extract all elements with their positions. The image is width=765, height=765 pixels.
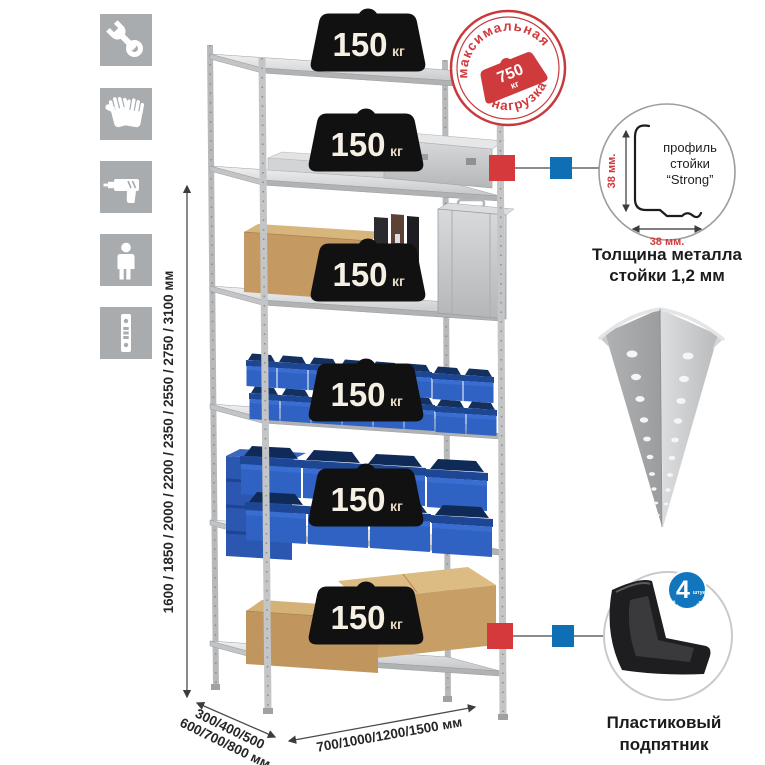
shelf-load-badge: 150 кг: [309, 112, 423, 172]
load-value: 150: [330, 376, 385, 413]
shelf-load-badge: 150 кг: [309, 467, 423, 527]
load-unit: кг: [390, 498, 403, 514]
wrench-icon: [100, 14, 152, 66]
shelving-infographic: 1600 / 1850 / 2000 / 2200 / 2350 / 2550 …: [0, 0, 765, 765]
height-dimension: 1600 / 1850 / 2000 / 2200 / 2350 / 2550 …: [161, 186, 187, 697]
load-unit: кг: [390, 143, 403, 159]
foot-callout-line: [487, 623, 606, 649]
foot-caption-2: подпятник: [620, 735, 709, 754]
foot-caption-1: Пластиковый: [607, 713, 722, 732]
height-dimension-label: 1600 / 1850 / 2000 / 2200 / 2350 / 2550 …: [161, 271, 176, 614]
shelf-load-badge: 150 кг: [309, 362, 423, 422]
profile-dim-vertical: 38 мм.: [606, 154, 618, 189]
load-value: 150: [330, 481, 385, 518]
profile-callout-line: [489, 155, 601, 181]
load-unit: кг: [390, 393, 403, 409]
load-value: 150: [330, 599, 385, 636]
profile-caption-2: стойки 1,2 мм: [609, 266, 725, 285]
profile-caption-1: Толщина металла: [592, 245, 742, 264]
quantity-unit: штуки: [693, 590, 708, 596]
perforated-upright-icon: [100, 307, 152, 359]
plastic-foot-detail: 4 штуки в комплекте Пластиковый подпятни…: [604, 571, 732, 754]
feature-icons: [100, 14, 152, 359]
profile-label-2: стойки: [670, 156, 710, 171]
width-dimension: 700/1000/1200/1500 мм: [289, 707, 475, 755]
shelf-load-badge: 150 кг: [309, 585, 423, 645]
profile-label-1: профиль: [663, 140, 717, 155]
drill-icon: [100, 161, 152, 213]
gloves-icon: [100, 88, 152, 140]
post-profile-detail: 38 мм. 38 мм. профиль стойки “Strong” То…: [592, 104, 742, 285]
person-icon: [100, 234, 152, 286]
profile-label-3: “Strong”: [667, 172, 714, 187]
quantity-value: 4: [676, 576, 690, 604]
load-unit: кг: [392, 43, 405, 59]
load-value: 150: [330, 126, 385, 163]
shelf-load-badge: 150 кг: [311, 242, 425, 302]
max-load-stamp: максимальная нагрузка 750 кг: [434, 0, 582, 142]
load-value: 150: [332, 26, 387, 63]
load-unit: кг: [392, 273, 405, 289]
shelf-load-badge: 150 кг: [311, 12, 425, 72]
load-value: 150: [332, 256, 387, 293]
width-dimension-label: 700/1000/1200/1500 мм: [315, 714, 463, 754]
infographic-svg: 1600 / 1850 / 2000 / 2200 / 2350 / 2550 …: [0, 0, 765, 765]
load-unit: кг: [390, 616, 403, 632]
upright-post-image: [600, 309, 723, 527]
